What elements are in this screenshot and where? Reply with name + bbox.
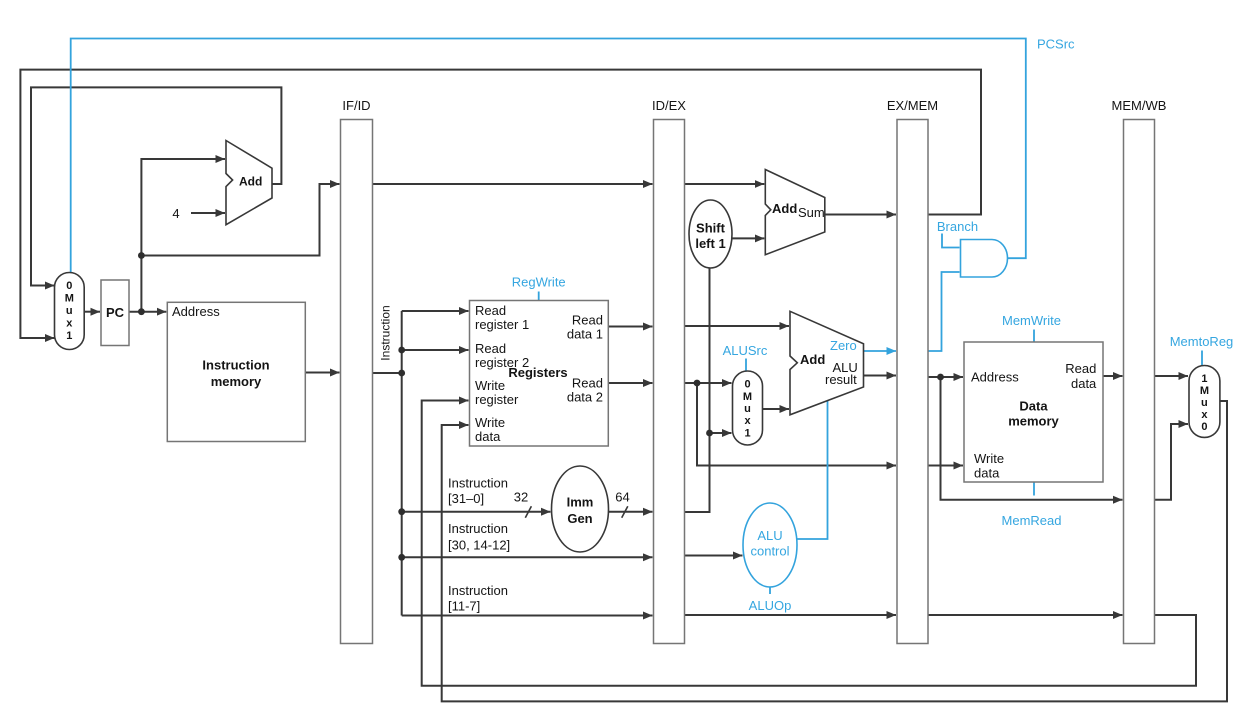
svg-text:ALU: ALU — [757, 528, 782, 543]
svg-text:data: data — [1071, 376, 1097, 391]
svg-text:Imm: Imm — [567, 495, 594, 510]
svg-text:MemWrite: MemWrite — [1002, 313, 1061, 328]
svg-text:[31–0]: [31–0] — [448, 491, 484, 506]
svg-text:32: 32 — [514, 490, 528, 505]
svg-text:Write: Write — [475, 415, 505, 430]
svg-text:Data: Data — [1019, 399, 1048, 414]
svg-text:u: u — [1201, 397, 1208, 409]
svg-text:data 2: data 2 — [567, 390, 603, 405]
svg-text:M: M — [65, 293, 74, 305]
svg-text:Instruction: Instruction — [379, 305, 393, 360]
svg-text:Instruction: Instruction — [448, 583, 508, 598]
svg-text:PCSrc: PCSrc — [1037, 37, 1075, 52]
svg-text:x: x — [744, 415, 751, 427]
svg-text:u: u — [744, 403, 751, 415]
svg-text:register 1: register 1 — [475, 317, 529, 332]
svg-text:ALUOp: ALUOp — [749, 598, 792, 613]
svg-text:data 1: data 1 — [567, 327, 603, 342]
svg-text:EX/MEM: EX/MEM — [887, 98, 938, 113]
svg-text:[11-7]: [11-7] — [448, 599, 480, 614]
svg-text:left 1: left 1 — [695, 236, 725, 251]
svg-text:Read: Read — [475, 341, 506, 356]
svg-text:[30, 14-12]: [30, 14-12] — [448, 538, 510, 553]
svg-text:Read: Read — [1065, 361, 1096, 376]
svg-text:Instruction: Instruction — [448, 521, 508, 536]
svg-text:IF/ID: IF/ID — [342, 98, 370, 113]
svg-text:1: 1 — [66, 330, 72, 342]
svg-text:memory: memory — [1008, 414, 1059, 429]
svg-text:Read: Read — [572, 313, 603, 328]
svg-text:Write: Write — [974, 451, 1004, 466]
svg-text:Write: Write — [475, 378, 505, 393]
svg-text:MemRead: MemRead — [1002, 513, 1062, 528]
svg-text:ALUSrc: ALUSrc — [723, 343, 768, 358]
svg-text:memory: memory — [211, 374, 262, 389]
svg-text:PC: PC — [106, 305, 125, 320]
svg-text:Address: Address — [971, 370, 1019, 385]
svg-text:M: M — [743, 391, 752, 403]
svg-text:Read: Read — [475, 303, 506, 318]
svg-text:1: 1 — [1201, 373, 1207, 385]
svg-text:Address: Address — [172, 304, 220, 319]
svg-text:Branch: Branch — [937, 219, 978, 234]
svg-text:Add: Add — [800, 352, 825, 367]
svg-text:Instruction: Instruction — [448, 476, 508, 491]
svg-text:1: 1 — [744, 428, 750, 440]
svg-text:data: data — [475, 429, 501, 444]
svg-text:Zero: Zero — [830, 338, 857, 353]
svg-text:register: register — [475, 392, 519, 407]
svg-text:0: 0 — [1201, 421, 1207, 433]
svg-text:x: x — [66, 318, 73, 330]
svg-text:Add: Add — [239, 175, 262, 189]
svg-text:Sum: Sum — [798, 205, 825, 220]
svg-text:Instruction: Instruction — [202, 358, 269, 373]
svg-text:RegWrite: RegWrite — [512, 275, 566, 290]
svg-text:x: x — [1201, 409, 1208, 421]
svg-text:ID/EX: ID/EX — [652, 98, 686, 113]
svg-text:u: u — [66, 305, 73, 317]
svg-text:control: control — [750, 544, 789, 559]
svg-text:Read: Read — [572, 376, 603, 391]
svg-text:64: 64 — [615, 490, 629, 505]
svg-text:Shift: Shift — [696, 221, 726, 236]
svg-text:Registers: Registers — [508, 365, 567, 380]
svg-text:MemtoReg: MemtoReg — [1170, 334, 1234, 349]
svg-text:data: data — [974, 466, 1000, 481]
svg-text:result: result — [825, 372, 857, 387]
svg-text:0: 0 — [66, 280, 72, 292]
svg-text:4: 4 — [172, 206, 179, 221]
svg-text:M: M — [1200, 385, 1209, 397]
svg-text:0: 0 — [744, 379, 750, 391]
svg-text:Add: Add — [772, 201, 797, 216]
svg-text:MEM/WB: MEM/WB — [1112, 98, 1167, 113]
svg-text:Gen: Gen — [567, 511, 592, 526]
